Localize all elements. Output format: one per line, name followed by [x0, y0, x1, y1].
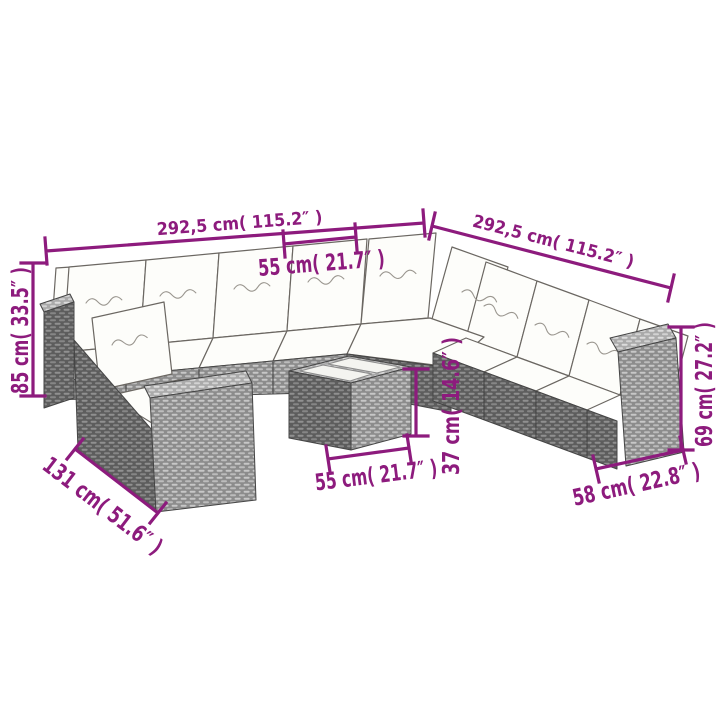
- chaise-arm-front: [150, 383, 256, 512]
- dimension-label: 58 cm( 22.8″ ): [570, 459, 703, 512]
- diagram-canvas: 292,5 cm( 115.2″ ) 292,5 cm( 115.2″ ) 55…: [0, 0, 720, 720]
- dimension-label: 37 cm( 14.6″ ): [439, 337, 465, 475]
- dimension-label: 85 cm( 33.5″ ): [8, 267, 34, 394]
- dimension-backrest-height: 85 cm( 33.5″ ): [8, 263, 45, 396]
- table-left-face: [289, 371, 351, 450]
- dimension-label: 55 cm( 21.7″ ): [314, 456, 439, 497]
- right-armrest: [610, 324, 684, 466]
- coffee-table: [289, 356, 411, 450]
- product-dimension-diagram: 292,5 cm( 115.2″ ) 292,5 cm( 115.2″ ) 55…: [0, 0, 720, 720]
- left-armrest: [40, 294, 74, 408]
- dimension-label: 69 cm( 27.2″ ): [692, 322, 718, 447]
